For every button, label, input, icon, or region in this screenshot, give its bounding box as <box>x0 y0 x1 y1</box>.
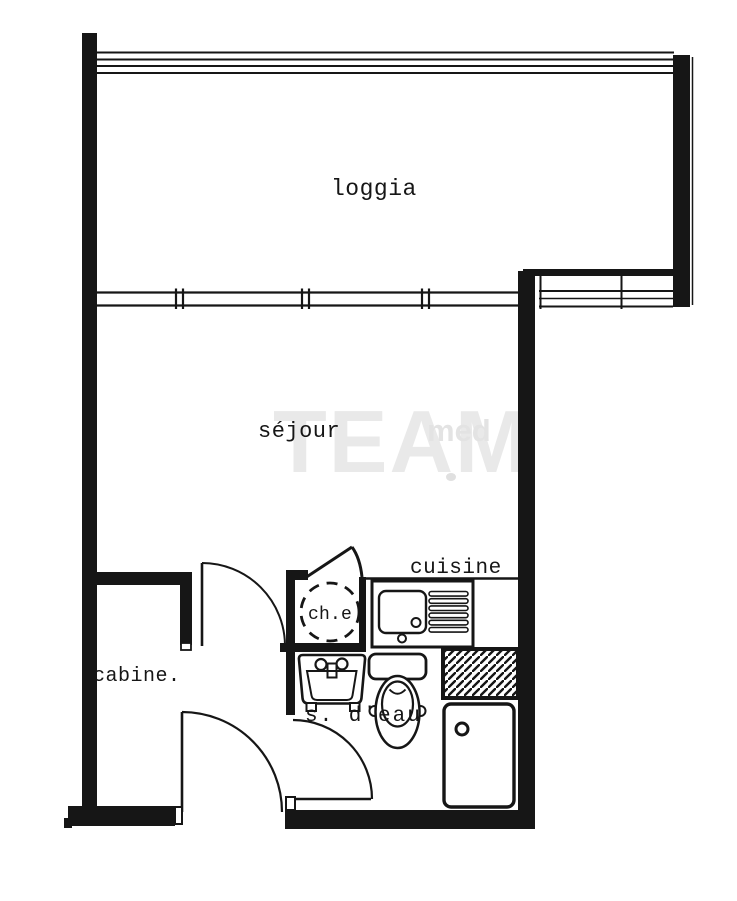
washbasin-tap <box>337 659 348 670</box>
wall-bottom-left-foot <box>64 818 72 828</box>
watermark-speck <box>446 473 456 481</box>
room-label-cabine: cabine. <box>93 665 181 688</box>
washbasin <box>299 655 365 711</box>
wall-heater-bottom <box>280 643 366 652</box>
room-label-cuisine: cuisine <box>410 557 502 580</box>
wall-bottom-left <box>68 806 175 826</box>
cooktop-bar <box>429 628 468 633</box>
cooktop-bar <box>429 592 468 597</box>
room-label-sejour: séjour <box>258 419 340 444</box>
floor-plan-svg: TEAM med <box>0 0 737 901</box>
cooktop-bar <box>429 613 468 618</box>
wall-bottom-right <box>285 810 533 829</box>
room-label-loggia: loggia <box>331 176 417 202</box>
shower-tray <box>444 704 514 807</box>
floor-plan-page: TEAM med <box>0 0 737 901</box>
duct-hatch <box>443 649 518 698</box>
wall-cabine-top <box>85 572 192 585</box>
wall-left <box>82 33 97 812</box>
cooktop-bar <box>429 599 468 604</box>
room-label-salle-eau: s. d'eau <box>305 705 422 728</box>
jamb <box>181 643 191 650</box>
room-label-chauffe-eau: ch.e <box>308 605 352 625</box>
wall-right <box>518 271 535 829</box>
shower-tray-edge <box>444 704 514 807</box>
jamb <box>175 807 182 824</box>
shower-drain <box>456 723 468 735</box>
kitchen-sink-drain <box>412 618 421 627</box>
duct-box <box>443 649 518 698</box>
wall-heater-stub <box>288 570 308 580</box>
washbasin-tap <box>316 659 327 670</box>
cooktop-bar <box>429 606 468 611</box>
wall-bathroom-left <box>286 570 295 715</box>
cooktop-bar <box>429 620 468 625</box>
watermark-sub: med <box>427 413 491 448</box>
wall-cabine-right <box>180 572 192 645</box>
wall-strip-top-right <box>523 269 690 276</box>
jamb <box>286 797 295 810</box>
kitchen-knob <box>398 635 406 643</box>
